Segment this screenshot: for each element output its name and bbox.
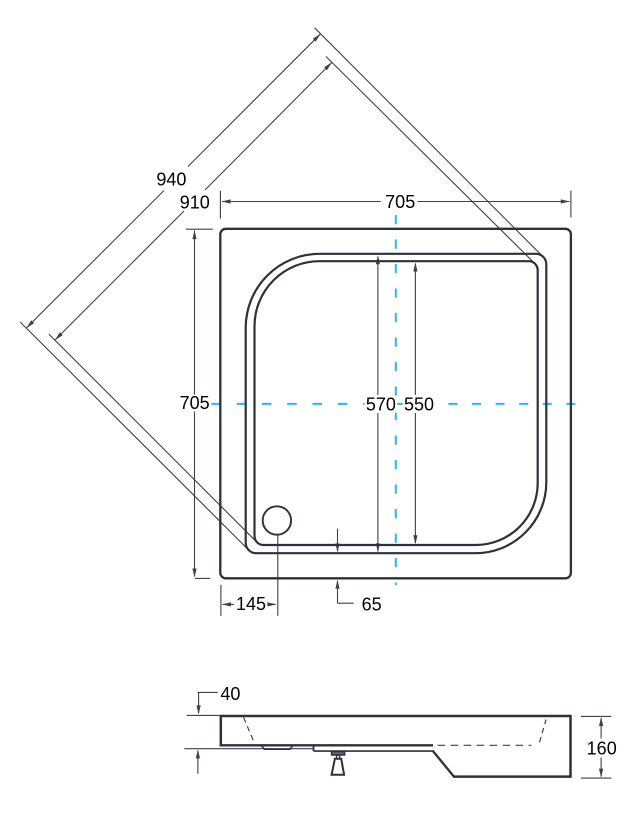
svg-text:910: 910 bbox=[180, 193, 210, 213]
svg-text:705: 705 bbox=[385, 192, 415, 212]
svg-text:160: 160 bbox=[587, 739, 617, 759]
svg-text:550: 550 bbox=[404, 395, 434, 415]
svg-text:40: 40 bbox=[220, 684, 240, 704]
svg-text:705: 705 bbox=[180, 393, 210, 413]
svg-text:570: 570 bbox=[366, 395, 396, 415]
svg-text:940: 940 bbox=[156, 169, 186, 189]
svg-text:145: 145 bbox=[236, 594, 266, 614]
svg-text:65: 65 bbox=[362, 595, 382, 615]
